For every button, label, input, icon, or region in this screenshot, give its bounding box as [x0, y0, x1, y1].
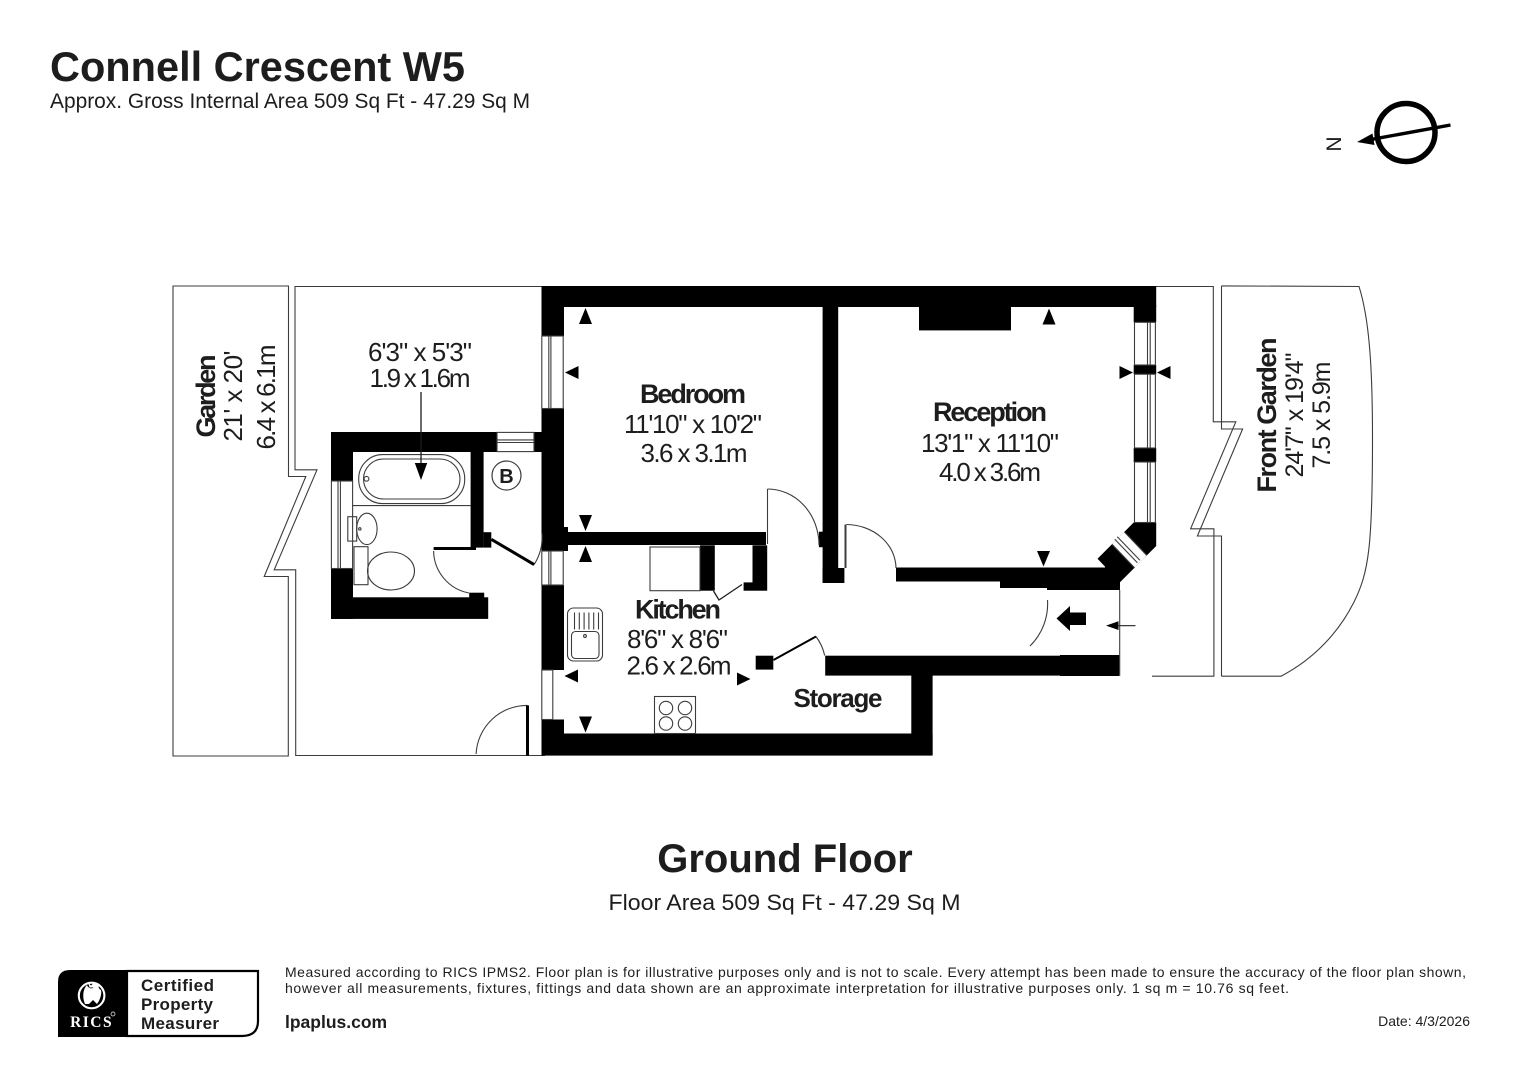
svg-text:7.5 x 5.9m: 7.5 x 5.9m: [1308, 362, 1336, 469]
svg-text:Garden: Garden: [191, 355, 221, 438]
svg-text:Storage: Storage: [794, 683, 883, 713]
svg-text:21' x 20': 21' x 20': [218, 351, 248, 442]
svg-text:13'1" x 11'10": 13'1" x 11'10": [921, 428, 1059, 458]
svg-text:11'10" x 10'2": 11'10" x 10'2": [624, 409, 762, 439]
svg-text:Date: 4/3/2026: Date: 4/3/2026: [1378, 1013, 1470, 1029]
svg-text:RICS: RICS: [70, 1014, 113, 1031]
svg-text:4.0 x 3.6m: 4.0 x 3.6m: [939, 457, 1041, 487]
svg-text:24'7" x 19'4": 24'7" x 19'4": [1281, 353, 1309, 478]
svg-text:Floor Area 509 Sq Ft - 47.29 S: Floor Area 509 Sq Ft - 47.29 Sq M: [609, 890, 961, 915]
svg-text:Reception: Reception: [933, 397, 1047, 427]
svg-text:Ground Floor: Ground Floor: [657, 837, 913, 881]
svg-text:Certified: Certified: [141, 976, 214, 995]
svg-text:Bedroom: Bedroom: [640, 379, 746, 409]
svg-text:N: N: [1323, 136, 1346, 151]
svg-text:8'6" x 8'6": 8'6" x 8'6": [627, 624, 728, 654]
svg-text:3.6 x 3.1m: 3.6 x 3.1m: [641, 438, 748, 468]
svg-text:B: B: [499, 466, 513, 488]
svg-text:2.6 x 2.6m: 2.6 x 2.6m: [627, 651, 732, 681]
svg-text:Measurer: Measurer: [141, 1014, 219, 1033]
svg-text:Measured according to RICS IPM: Measured according to RICS IPMS2. Floor …: [285, 964, 1466, 980]
svg-text:1.9 x 1.6m: 1.9 x 1.6m: [370, 363, 471, 393]
svg-text:Property: Property: [141, 995, 214, 1014]
svg-text:Kitchen: Kitchen: [635, 595, 721, 625]
svg-text:Connell Crescent W5: Connell Crescent W5: [50, 43, 465, 90]
svg-text:Front Garden: Front Garden: [1252, 338, 1282, 493]
svg-text:lpaplus.com: lpaplus.com: [285, 1012, 387, 1032]
svg-text:6.4 x 6.1m: 6.4 x 6.1m: [251, 345, 281, 450]
svg-text:Approx. Gross Internal Area 50: Approx. Gross Internal Area 509 Sq Ft - …: [50, 90, 530, 113]
svg-text:however all measurements, fixt: however all measurements, fixtures, fitt…: [285, 980, 1289, 996]
